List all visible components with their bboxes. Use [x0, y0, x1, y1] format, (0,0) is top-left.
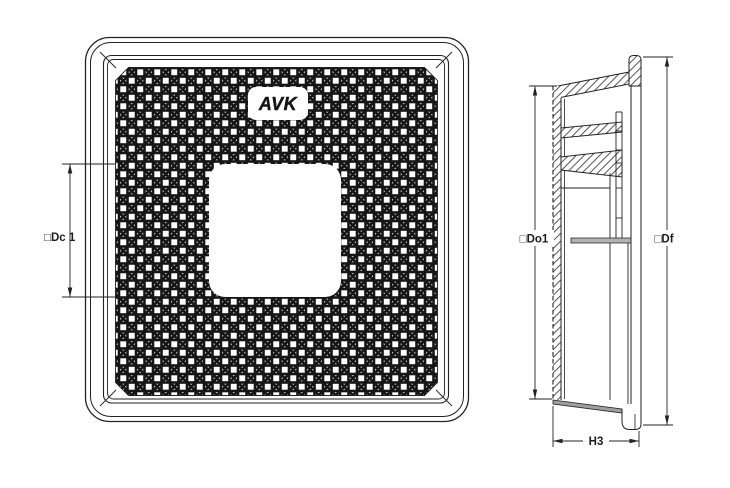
dimension-dc1: □Dc 1: [44, 164, 116, 297]
h3-arrow-right: [630, 439, 640, 443]
grating-technical-drawing: AVK □Dc 1: [0, 0, 730, 488]
section-view: □Do1 □Df H3: [514, 56, 680, 449]
seat-band: [571, 238, 631, 243]
dc1-arrow-down: [68, 288, 73, 298]
dc1-arrow-up: [68, 164, 73, 174]
logo-text: AVK: [258, 94, 299, 114]
bottom-foot: [622, 409, 641, 430]
dimension-h3: H3: [553, 406, 639, 448]
central-opening: [209, 164, 341, 297]
plan-view: AVK □Dc 1: [44, 38, 469, 422]
do1-arrow-up: [533, 86, 537, 96]
technical-drawing-page: AVK □Dc 1: [0, 0, 730, 488]
df-arrow-up: [665, 57, 669, 67]
grate-rib-section-2: [561, 150, 622, 177]
h3-arrow-left: [553, 439, 563, 443]
logo-plaque: AVK: [248, 87, 308, 120]
top-flange-section: [558, 72, 629, 98]
dimension-df: □Df: [643, 57, 680, 425]
grate-rib-section-1: [561, 122, 622, 138]
bottom-slope-band: [553, 400, 622, 413]
dimension-label-df: □Df: [654, 234, 673, 246]
df-arrow-down: [665, 416, 669, 426]
dimension-do1: □Do1: [514, 86, 557, 399]
do1-arrow-down: [533, 390, 537, 400]
dimension-label-do1: □Do1: [520, 234, 549, 246]
frame-lip-section: [629, 56, 641, 87]
dimension-label-h3: H3: [589, 436, 604, 448]
dimension-label-dc1: □Dc 1: [44, 232, 76, 244]
left-wall-section: [553, 86, 561, 400]
